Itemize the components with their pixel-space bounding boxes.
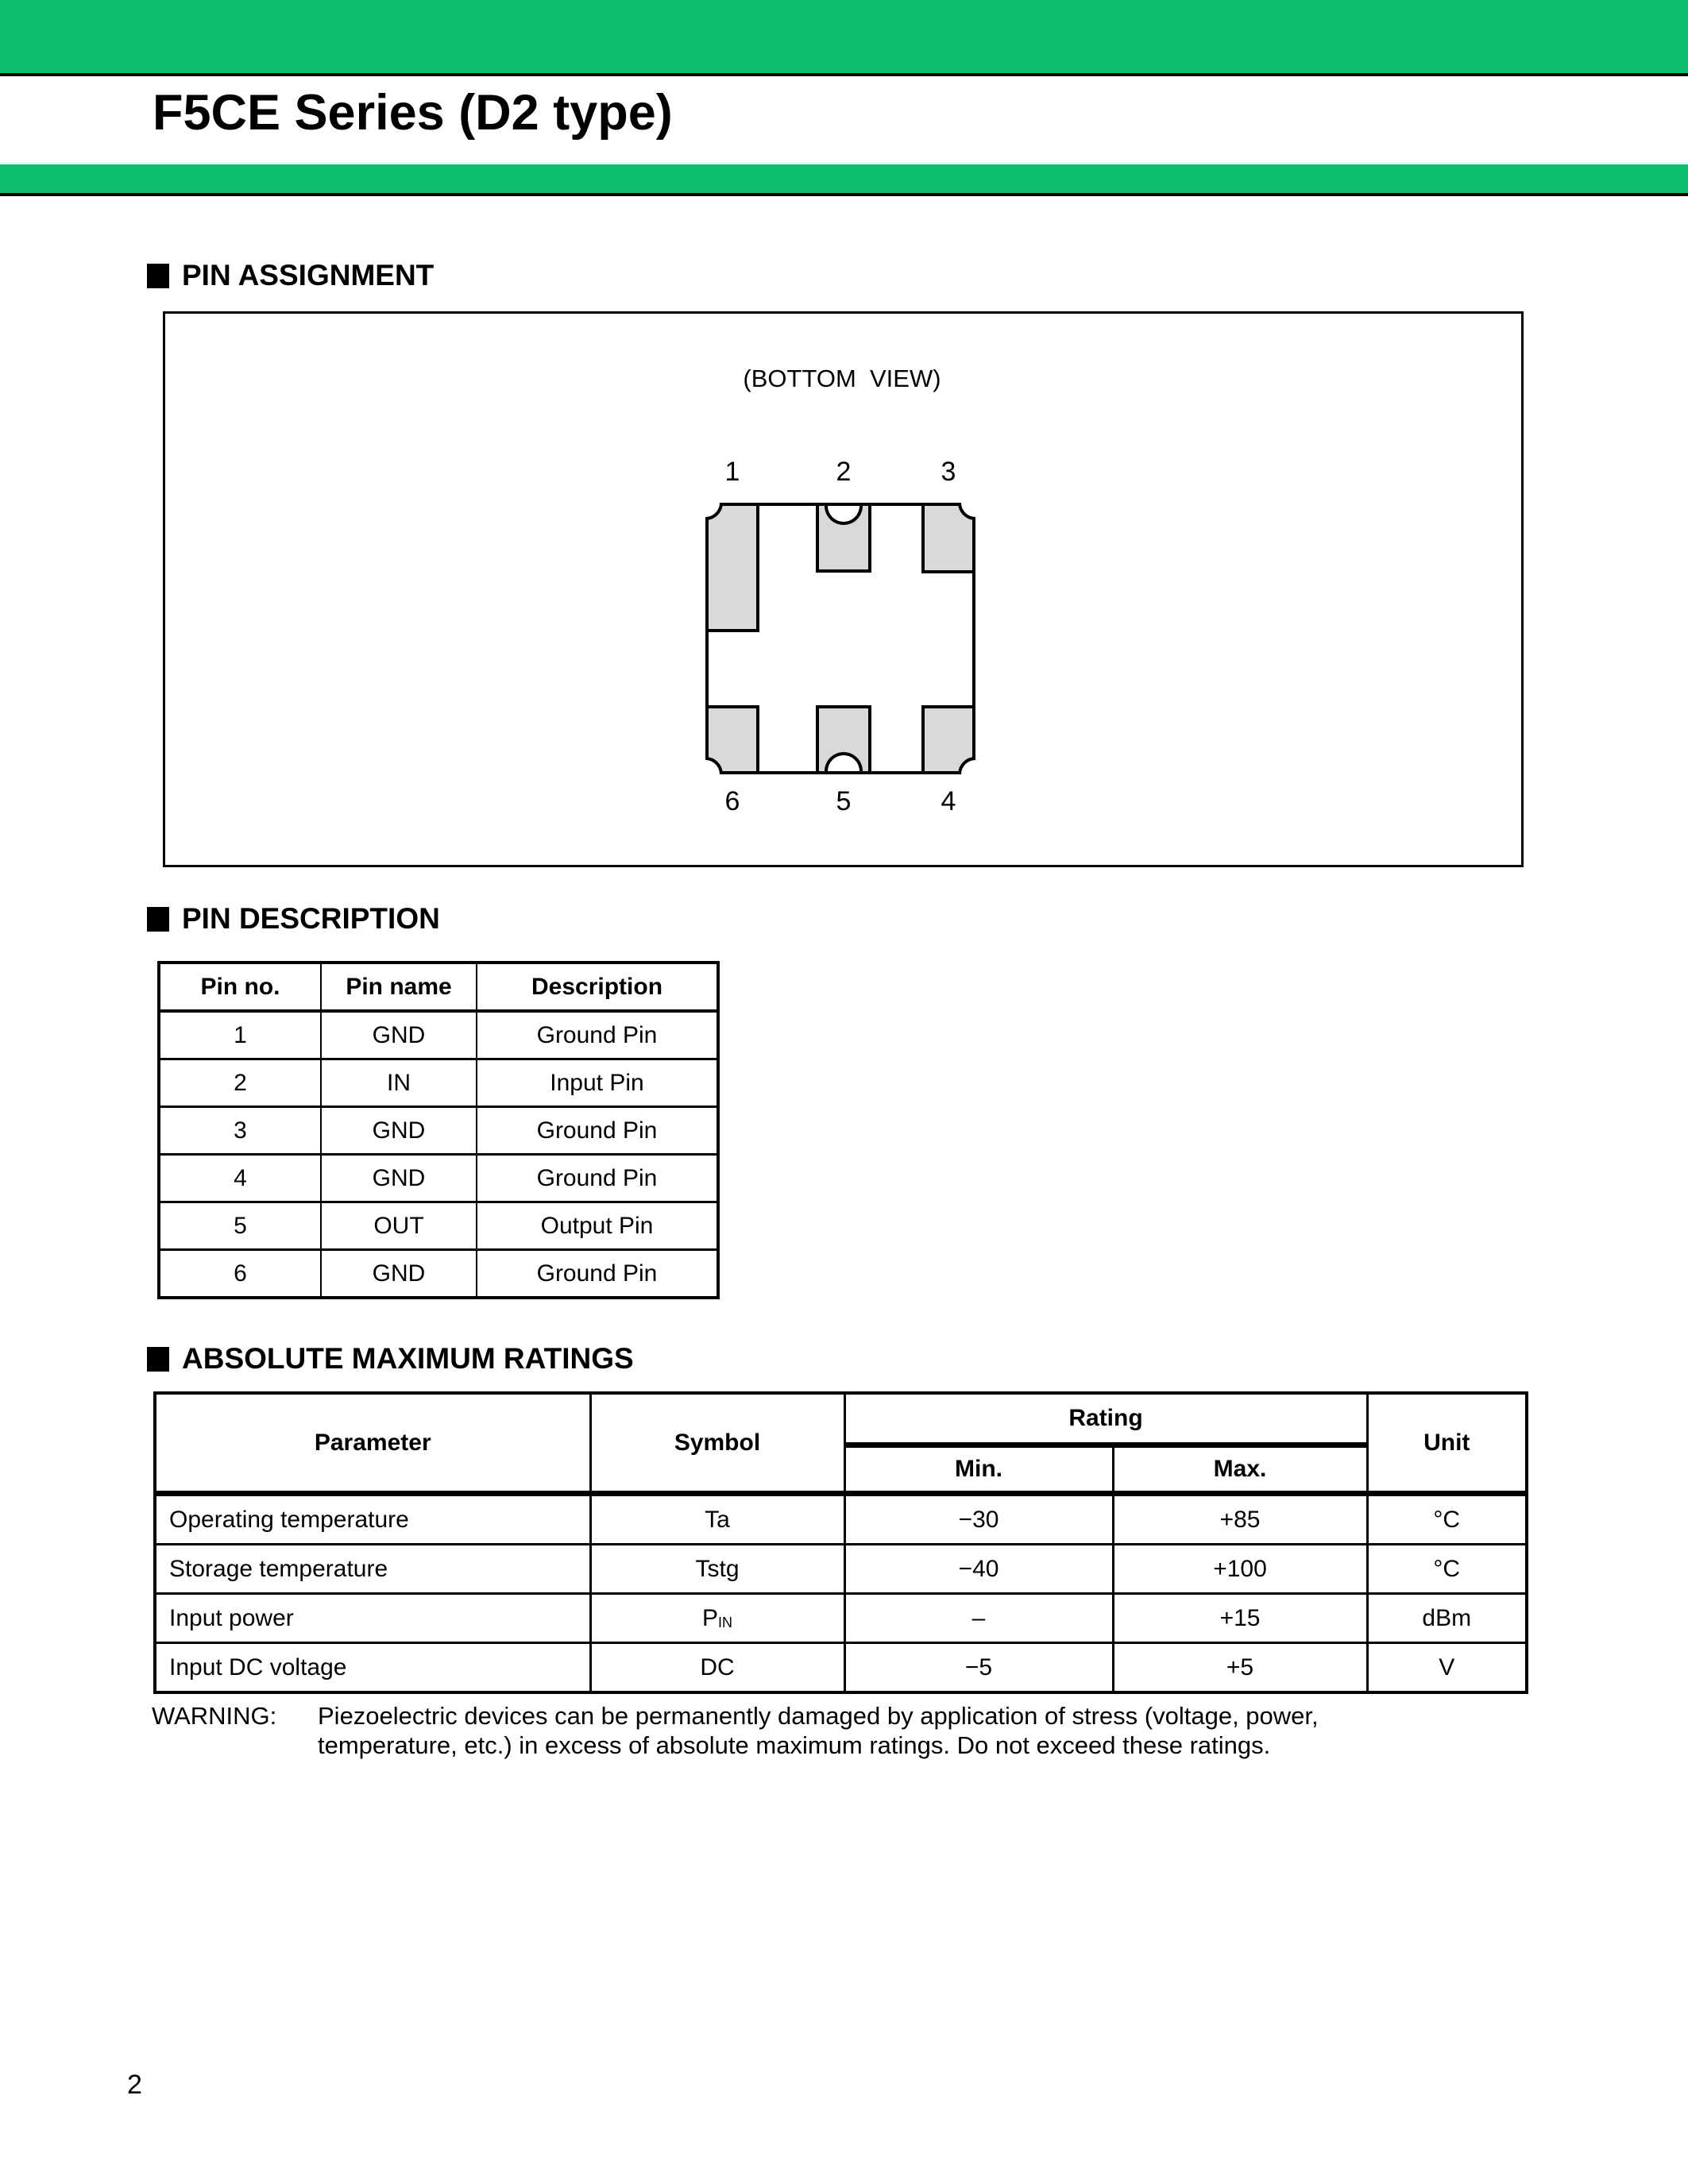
table-cell: +85 bbox=[1113, 1494, 1367, 1545]
table-cell: Operating temperature bbox=[155, 1494, 590, 1545]
table-cell: GND bbox=[321, 1155, 477, 1202]
table-cell: IN bbox=[321, 1059, 477, 1107]
table-cell: Ground Pin bbox=[477, 1011, 718, 1059]
column-header: Max. bbox=[1113, 1445, 1367, 1494]
table-row: 5OUTOutput Pin bbox=[159, 1202, 718, 1250]
table-cell: +5 bbox=[1113, 1643, 1367, 1693]
table-header-row: Pin no. Pin name Description bbox=[159, 963, 718, 1011]
pad-pin-1 bbox=[705, 503, 759, 632]
section-bullet-icon bbox=[147, 907, 169, 932]
table-cell: −40 bbox=[844, 1545, 1113, 1594]
symbol-subscript: IN bbox=[718, 1615, 732, 1630]
table-cell: Storage temperature bbox=[155, 1545, 590, 1594]
section-heading-absolute-maximum-ratings: ABSOLUTE MAXIMUM RATINGS bbox=[147, 1342, 634, 1376]
column-header: Description bbox=[477, 963, 718, 1011]
table-cell: +100 bbox=[1113, 1545, 1367, 1594]
section-bullet-icon bbox=[147, 264, 169, 288]
pin-number-label: 2 bbox=[820, 457, 867, 488]
table-cell: Ground Pin bbox=[477, 1250, 718, 1298]
page-title: F5CE Series (D2 type) bbox=[153, 84, 673, 141]
pin-number-label: 1 bbox=[709, 457, 756, 488]
table-row: 6GNDGround Pin bbox=[159, 1250, 718, 1298]
table-row: Input DC voltageDC−5+5V bbox=[155, 1643, 1527, 1693]
package-outline bbox=[705, 503, 975, 774]
table-cell: dBm bbox=[1367, 1594, 1527, 1643]
table-cell: Ground Pin bbox=[477, 1107, 718, 1155]
table-row: Storage temperatureTstg−40+100°C bbox=[155, 1545, 1527, 1594]
table-cell: 3 bbox=[159, 1107, 321, 1155]
table-cell: Ta bbox=[590, 1494, 844, 1545]
table-cell: GND bbox=[321, 1107, 477, 1155]
table-row: Input powerPIN–+15dBm bbox=[155, 1594, 1527, 1643]
column-header: Unit bbox=[1367, 1393, 1527, 1494]
table-row: 3GNDGround Pin bbox=[159, 1107, 718, 1155]
table-cell: Output Pin bbox=[477, 1202, 718, 1250]
section-heading-label: PIN DESCRIPTION bbox=[182, 902, 440, 936]
column-header: Min. bbox=[844, 1445, 1113, 1494]
column-header: Parameter bbox=[155, 1393, 590, 1494]
table-cell: GND bbox=[321, 1250, 477, 1298]
pin-number-label: 5 bbox=[820, 786, 867, 817]
column-header: Pin no. bbox=[159, 963, 321, 1011]
warning-line-1: Piezoelectric devices can be permanently… bbox=[318, 1701, 1319, 1731]
table-row: 2INInput Pin bbox=[159, 1059, 718, 1107]
section-heading-pin-assignment: PIN ASSIGNMENT bbox=[147, 259, 434, 292]
table-cell: – bbox=[844, 1594, 1113, 1643]
column-header-rating: Rating bbox=[844, 1393, 1367, 1445]
pin-number-label: 6 bbox=[709, 786, 756, 817]
table-cell: GND bbox=[321, 1011, 477, 1059]
section-heading-label: PIN ASSIGNMENT bbox=[182, 259, 434, 292]
table-cell: °C bbox=[1367, 1494, 1527, 1545]
absolute-maximum-ratings-table: Parameter Symbol Rating Unit Min. Max. O… bbox=[153, 1391, 1528, 1694]
warning-label: WARNING: bbox=[152, 1701, 318, 1760]
section-heading-pin-description: PIN DESCRIPTION bbox=[147, 902, 440, 936]
pin-number-label: 4 bbox=[925, 786, 972, 817]
warning-note: WARNING: Piezoelectric devices can be pe… bbox=[152, 1701, 1319, 1760]
table-cell: Ground Pin bbox=[477, 1155, 718, 1202]
table-cell: DC bbox=[590, 1643, 844, 1693]
table-cell: Tstg bbox=[590, 1545, 844, 1594]
column-header: Pin name bbox=[321, 963, 477, 1011]
header-accent-bar-top bbox=[0, 0, 1688, 76]
column-header: Symbol bbox=[590, 1393, 844, 1494]
table-cell: PIN bbox=[590, 1594, 844, 1643]
table-row: 1GNDGround Pin bbox=[159, 1011, 718, 1059]
table-cell: 6 bbox=[159, 1250, 321, 1298]
datasheet-page: F5CE Series (D2 type) PIN ASSIGNMENT (BO… bbox=[0, 0, 1688, 2184]
table-cell: °C bbox=[1367, 1545, 1527, 1594]
table-header-row: Parameter Symbol Rating Unit bbox=[155, 1393, 1527, 1445]
warning-text: Piezoelectric devices can be permanently… bbox=[318, 1701, 1319, 1760]
bottom-view-label: (BOTTOM VIEW) bbox=[683, 365, 1001, 393]
page-number: 2 bbox=[127, 2070, 142, 2101]
table-cell: +15 bbox=[1113, 1594, 1367, 1643]
warning-line-2: temperature, etc.) in excess of absolute… bbox=[318, 1731, 1319, 1760]
table-cell: 5 bbox=[159, 1202, 321, 1250]
table-row: Operating temperatureTa−30+85°C bbox=[155, 1494, 1527, 1545]
table-cell: Input Pin bbox=[477, 1059, 718, 1107]
table-cell: −30 bbox=[844, 1494, 1113, 1545]
pin-description-table: Pin no. Pin name Description 1GNDGround … bbox=[157, 961, 720, 1299]
table-cell: Input power bbox=[155, 1594, 590, 1643]
table-cell: Input DC voltage bbox=[155, 1643, 590, 1693]
header-accent-bar-under-title bbox=[0, 164, 1688, 196]
table-cell: 4 bbox=[159, 1155, 321, 1202]
table-cell: OUT bbox=[321, 1202, 477, 1250]
pin-assignment-diagram-box: (BOTTOM VIEW) 1 2 3 6 5 4 bbox=[163, 311, 1524, 867]
table-cell: V bbox=[1367, 1643, 1527, 1693]
table-cell: 1 bbox=[159, 1011, 321, 1059]
section-heading-label: ABSOLUTE MAXIMUM RATINGS bbox=[182, 1342, 634, 1376]
table-row: 4GNDGround Pin bbox=[159, 1155, 718, 1202]
section-bullet-icon bbox=[147, 1347, 169, 1372]
pin-number-label: 3 bbox=[925, 457, 972, 488]
table-cell: −5 bbox=[844, 1643, 1113, 1693]
table-cell: 2 bbox=[159, 1059, 321, 1107]
